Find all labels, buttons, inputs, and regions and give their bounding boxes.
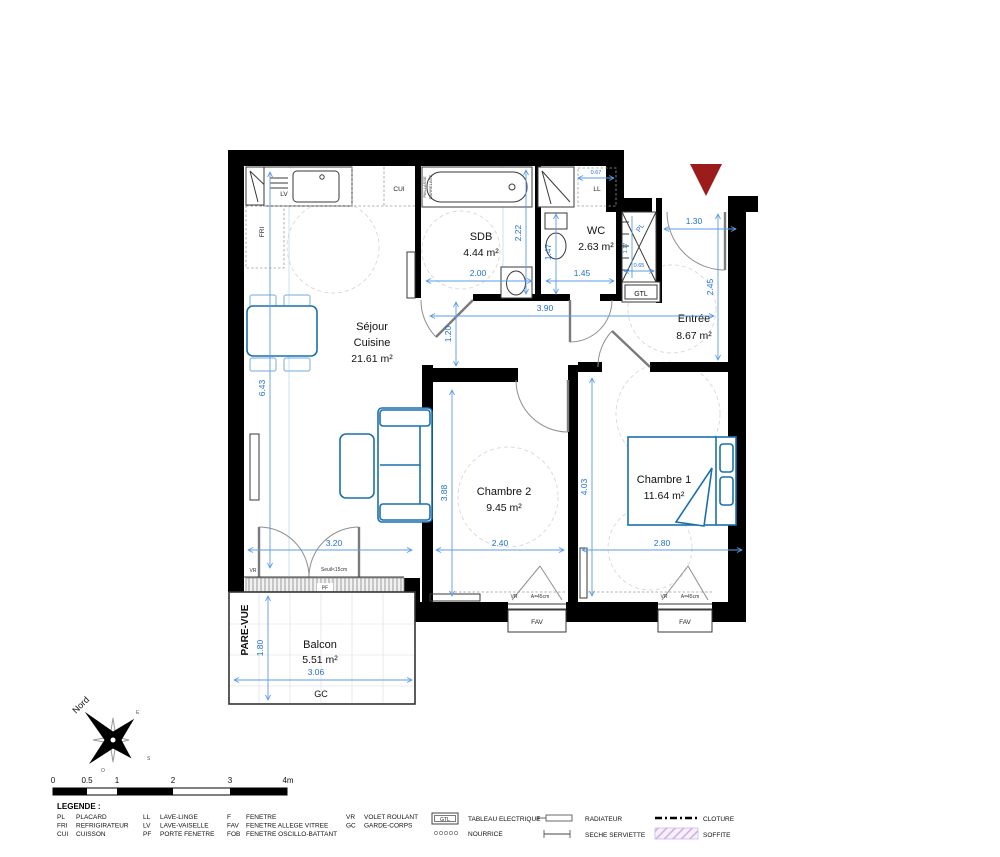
compass: Nord E S O bbox=[61, 691, 154, 784]
room-sejour-name: Séjour bbox=[356, 321, 388, 333]
compass-south-label: S bbox=[147, 756, 151, 762]
room-sdb-area: 4.44 m² bbox=[463, 247, 499, 259]
dim-entree-depth: 2.45 bbox=[705, 278, 715, 295]
dim-chambre1-width: 2.80 bbox=[654, 538, 671, 548]
fri-label: FRI bbox=[259, 227, 266, 238]
legend-abbr: LV bbox=[143, 823, 151, 830]
dim-pl-width: 0.65 bbox=[634, 263, 645, 269]
legend-nourrice-icon bbox=[434, 831, 457, 834]
kitchen-fixtures: LV CUI FRI bbox=[246, 167, 415, 268]
legend-label: TABLEAU ELECTRIQUE bbox=[468, 816, 541, 823]
dim-sdb-width: 2.00 bbox=[470, 268, 487, 278]
legend-abbr: FAV bbox=[227, 823, 239, 830]
dim-ll-width: 0.67 bbox=[591, 170, 602, 176]
shutter-width-label: A=45cm bbox=[681, 594, 699, 600]
towel-dryer-icon bbox=[407, 252, 415, 298]
washbasin-icon bbox=[501, 267, 532, 298]
scale-tick: 2 bbox=[171, 776, 176, 785]
legend-abbr: FOB bbox=[227, 831, 240, 838]
dim-wc-width: 1.45 bbox=[574, 268, 591, 278]
dim-sdb-depth: 2.22 bbox=[513, 224, 523, 241]
compass-west-label: O bbox=[101, 768, 105, 774]
coffee-table-icon bbox=[340, 434, 374, 498]
exterior-walls bbox=[228, 150, 758, 622]
legend-abbr: FRI bbox=[57, 823, 68, 830]
room-chambre1-area: 11.64 m² bbox=[644, 490, 685, 502]
sdb-door-icon bbox=[421, 300, 436, 337]
room-wc-area: 2.63 m² bbox=[578, 241, 614, 253]
legend: LEGENDE : PL PLACARD FRI REFRIGIRATEUR C… bbox=[57, 802, 735, 839]
room-entree-name: Entrée bbox=[678, 313, 710, 325]
dim-sejour-height: 6.43 bbox=[257, 379, 267, 396]
chair-icon bbox=[284, 358, 310, 371]
legend-radiator-icon bbox=[538, 815, 572, 821]
room-balcon-name: Balcon bbox=[303, 639, 337, 651]
table-icon bbox=[247, 306, 317, 356]
scale-tick: 0 bbox=[51, 776, 56, 785]
legend-label: REFRIGIRATEUR bbox=[76, 823, 129, 830]
dim-chambre1-height: 4.03 bbox=[579, 478, 589, 495]
chambre2-door-icon bbox=[516, 380, 568, 432]
legend-label: VOLET ROULANT bbox=[364, 814, 418, 821]
closet-gtl: PL GTL bbox=[622, 212, 660, 302]
legend-label: PORTE FENETRE bbox=[160, 831, 215, 838]
legend-gtl-text: GTL bbox=[440, 817, 450, 823]
pillow-icon bbox=[720, 477, 733, 505]
gc-label: GC bbox=[314, 689, 328, 699]
scale-tick: 3 bbox=[228, 776, 233, 785]
entrance-arrow-icon bbox=[690, 164, 722, 196]
paillasse-label: PAILLASSE bbox=[422, 176, 427, 198]
legend-label: FENETRE bbox=[246, 814, 277, 821]
room-entree-area: 8.67 m² bbox=[676, 330, 712, 342]
legend-title: LEGENDE : bbox=[57, 802, 101, 811]
legend-label: NOURRICE bbox=[468, 831, 503, 838]
legend-abbr: LL bbox=[143, 814, 151, 821]
room-sejour-name2: Cuisine bbox=[354, 337, 391, 349]
dim-chambre2-height: 3.88 bbox=[439, 484, 449, 501]
legend-label: FENETRE ALLEGE VITREE bbox=[246, 823, 329, 830]
pf-label: PF bbox=[322, 586, 328, 592]
scale-tick: 1 bbox=[115, 776, 120, 785]
room-chambre2-area: 9.45 m² bbox=[486, 502, 522, 514]
legend-label: LAVE-LINGE bbox=[160, 814, 198, 821]
legend-label: SOFFITE bbox=[703, 832, 731, 839]
balcony-door-icon bbox=[259, 527, 309, 577]
seuil-label: Seuil<15cm bbox=[321, 567, 347, 573]
legend-label: FENETRE OSCILLO-BATTANT bbox=[246, 831, 337, 838]
sink-icon bbox=[293, 171, 339, 202]
vr-label: VR bbox=[661, 594, 668, 600]
dim-balcon-depth: 1.80 bbox=[255, 639, 265, 656]
pare-vue-label: PARE-VUE bbox=[240, 604, 251, 655]
pillow-icon bbox=[720, 444, 733, 472]
legend-label: GARDE-CORPS bbox=[364, 823, 413, 830]
interior-walls bbox=[415, 166, 746, 602]
ll-label: LL bbox=[593, 186, 601, 193]
chambre1-door-icon bbox=[598, 331, 612, 367]
dim-balcon-width: 3.06 bbox=[308, 667, 325, 677]
legend-label: CLOTURE bbox=[703, 816, 735, 823]
wc-door-icon bbox=[570, 300, 612, 342]
radiator-icon bbox=[250, 434, 259, 500]
room-balcon-area: 5.51 m² bbox=[302, 654, 338, 666]
vr-label: VR bbox=[250, 568, 257, 574]
floor-plan-canvas: LV CUI FRI PAILLASSE CARRELAGE LL PL GTL bbox=[0, 0, 1000, 857]
radiator-icon bbox=[430, 594, 480, 601]
compass-north-label: Nord bbox=[70, 695, 91, 716]
legend-soffite-icon bbox=[655, 828, 698, 839]
dim-hall-width: 3.90 bbox=[537, 303, 554, 313]
legend-abbr: VR bbox=[346, 814, 355, 821]
legend-abbr: CUI bbox=[57, 831, 68, 838]
dim-pl-depth: 1.17 bbox=[623, 243, 629, 254]
scale-tick: 0.5 bbox=[81, 776, 93, 785]
room-chambre2-name: Chambre 2 bbox=[477, 486, 531, 498]
cui-label: CUI bbox=[393, 186, 404, 193]
dim-sejour-door: 3.20 bbox=[326, 538, 343, 548]
radiator-icon bbox=[580, 548, 587, 598]
room-wc-name: WC bbox=[587, 225, 605, 237]
room-sejour-area: 21.61 m² bbox=[351, 353, 393, 365]
legend-abbr: PF bbox=[143, 831, 151, 838]
lv-label: LV bbox=[280, 191, 288, 198]
floor-plan-page: LV CUI FRI PAILLASSE CARRELAGE LL PL GTL bbox=[0, 0, 1000, 857]
vr-label: VR bbox=[511, 594, 518, 600]
legend-abbr: GC bbox=[346, 823, 356, 830]
dim-entree-door: 1.30 bbox=[686, 216, 703, 226]
carrelage-label: CARRELAGE bbox=[428, 174, 433, 199]
shutter-width-label: A=45cm bbox=[531, 594, 549, 600]
room-sdb-name: SDB bbox=[470, 231, 493, 243]
legend-abbr: PL bbox=[57, 814, 65, 821]
legend-label: RADIATEUR bbox=[585, 816, 622, 823]
legend-label: SECHE SERVIETTE bbox=[585, 832, 646, 839]
room-chambre1-name: Chambre 1 bbox=[637, 474, 691, 486]
legend-label: LAVE-VAISELLE bbox=[160, 823, 209, 830]
fav-label: FAV bbox=[531, 619, 543, 626]
fav-label: FAV bbox=[679, 619, 691, 626]
dim-wc-depth: 1.47 bbox=[543, 243, 553, 260]
legend-label: PLACARD bbox=[76, 814, 107, 821]
chair-icon bbox=[250, 358, 276, 371]
legend-seche-serviette-icon bbox=[544, 830, 570, 838]
scale-bar: 0 0.5 1 2 3 4m bbox=[51, 776, 294, 795]
scale-tick: 4m bbox=[282, 776, 293, 785]
legend-label: CUISSON bbox=[76, 831, 106, 838]
compass-east-label: E bbox=[136, 710, 140, 716]
dim-chambre2-width: 2.40 bbox=[492, 538, 509, 548]
dim-hall-passage: 1.20 bbox=[443, 325, 453, 342]
legend-abbr: F bbox=[227, 814, 231, 821]
gtl-label: GTL bbox=[634, 291, 648, 298]
